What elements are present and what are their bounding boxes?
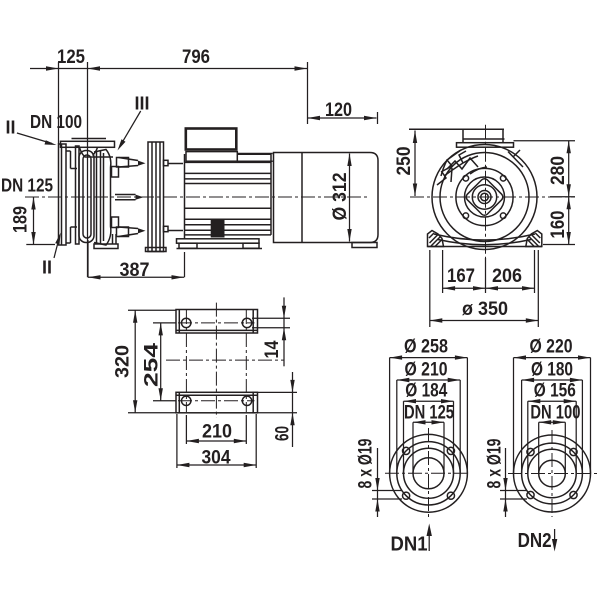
svg-text:250: 250 xyxy=(394,147,415,176)
svg-text:Ø 184: Ø 184 xyxy=(405,381,447,402)
svg-text:DN2: DN2 xyxy=(518,530,552,552)
svg-text:167: 167 xyxy=(447,266,475,287)
svg-text:280: 280 xyxy=(548,156,569,185)
svg-text:Ø 180: Ø 180 xyxy=(531,360,573,381)
svg-text:387: 387 xyxy=(120,260,150,281)
svg-text:125: 125 xyxy=(57,47,85,68)
svg-text:Ø 258: Ø 258 xyxy=(404,337,448,358)
svg-text:Ø 156: Ø 156 xyxy=(534,381,576,402)
svg-text:II: II xyxy=(42,258,52,278)
svg-text:III: III xyxy=(134,94,149,114)
svg-text:Ø 220: Ø 220 xyxy=(530,337,573,358)
svg-text:160: 160 xyxy=(548,211,569,239)
svg-text:254: 254 xyxy=(142,342,163,387)
svg-text:210: 210 xyxy=(202,422,232,443)
svg-text:60: 60 xyxy=(273,426,294,441)
svg-text:DN1: DN1 xyxy=(391,534,428,556)
svg-text:DN 100: DN 100 xyxy=(30,112,82,132)
svg-text:II: II xyxy=(5,118,15,138)
svg-text:14: 14 xyxy=(262,340,283,358)
svg-text:796: 796 xyxy=(182,47,210,68)
svg-text:Ø 312: Ø 312 xyxy=(330,173,351,221)
svg-text:120: 120 xyxy=(325,100,352,121)
svg-text:ø 350: ø 350 xyxy=(462,299,508,320)
svg-text:189: 189 xyxy=(11,206,32,233)
svg-text:DN 125: DN 125 xyxy=(404,403,454,424)
svg-text:8 x Ø19: 8 x Ø19 xyxy=(356,439,377,489)
svg-text:DN 125: DN 125 xyxy=(1,176,53,196)
svg-text:8 x Ø19: 8 x Ø19 xyxy=(485,439,506,489)
svg-text:206: 206 xyxy=(492,266,522,287)
svg-text:320: 320 xyxy=(113,345,134,378)
svg-text:304: 304 xyxy=(202,448,231,469)
svg-text:Ø 210: Ø 210 xyxy=(405,360,448,381)
svg-text:DN 100: DN 100 xyxy=(530,403,580,424)
